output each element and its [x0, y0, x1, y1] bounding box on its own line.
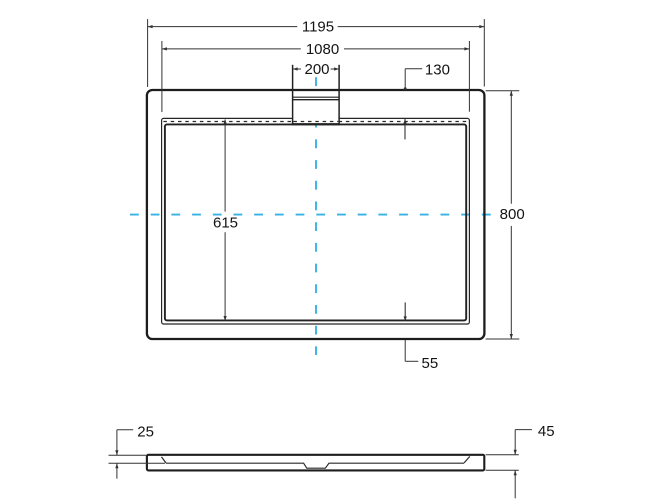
svg-text:1195: 1195 — [302, 18, 334, 35]
svg-text:45: 45 — [538, 423, 555, 440]
svg-text:130: 130 — [425, 61, 450, 78]
svg-text:1080: 1080 — [306, 41, 339, 58]
svg-text:55: 55 — [422, 355, 439, 372]
svg-text:615: 615 — [213, 215, 238, 232]
svg-text:200: 200 — [304, 61, 329, 78]
svg-text:800: 800 — [500, 206, 525, 223]
svg-text:25: 25 — [137, 423, 154, 440]
